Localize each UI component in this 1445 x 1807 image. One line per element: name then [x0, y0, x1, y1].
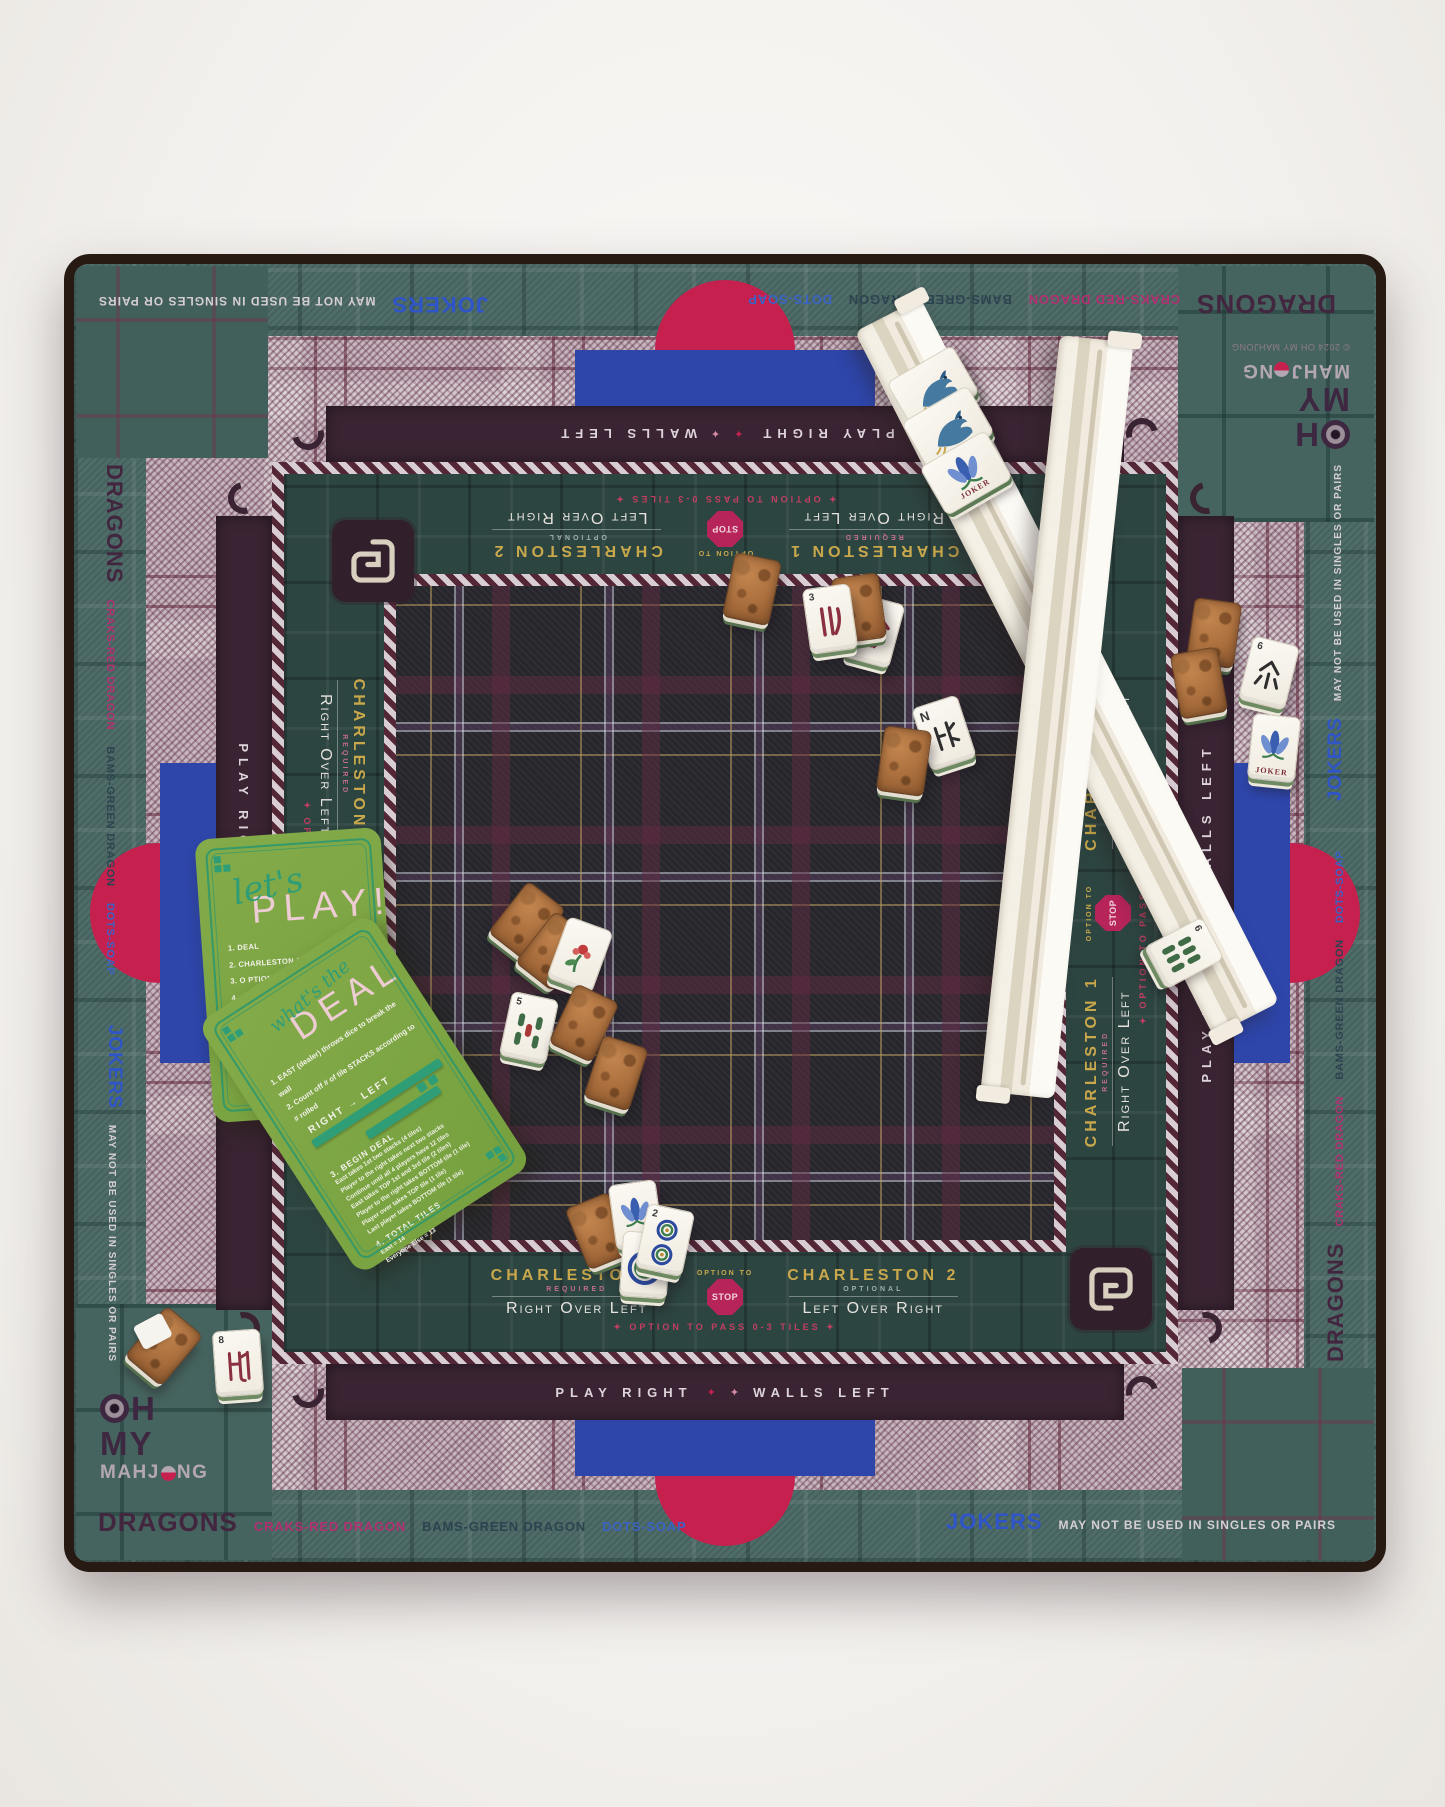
bam-sticks-icon [509, 1009, 548, 1053]
charleston1-required: REQUIRED [1102, 1031, 1109, 1092]
joker-label: JOKER [1248, 764, 1295, 778]
bam-sticks-icon [1157, 931, 1206, 977]
logo-my: MY [100, 1428, 272, 1459]
pass-tiles-label: ✦ OPTION TO PASS 0-3 TILES ✦ [613, 1322, 836, 1333]
bams-label: BAMS-GREEN DRAGON [1334, 939, 1346, 1080]
charleston1-title: CHARLESTON 1 [349, 679, 367, 851]
tile-joker[interactable]: JOKER [1247, 713, 1302, 784]
jokers-label: JOKERS [946, 1509, 1042, 1535]
bams-label: BAMS-GREEN DRAGON [104, 746, 116, 887]
jokers-note: MAY NOT BE USED IN SINGLES OR PAIRS [106, 1125, 117, 1362]
jokers-label: JOKERS [391, 291, 487, 317]
charleston2-title: CHARLESTON 2 [787, 1267, 959, 1285]
diamond-icon: ✦ [707, 1386, 716, 1399]
logo-mahjong-end: NG [177, 1462, 209, 1484]
charleston1-title: CHARLESTON 1 [1083, 975, 1101, 1147]
logo-oh: H [131, 1393, 157, 1424]
stop-badge: STOP [707, 511, 743, 547]
logo-mahjong-end: NG [1242, 359, 1274, 381]
tile-number: N [918, 708, 932, 725]
charleston1-required: REQUIRED [546, 1286, 607, 1293]
rack-pusher-arm [975, 1085, 1010, 1104]
dragons-label: DRAGONS [1323, 1243, 1349, 1362]
crak-character-glyph [1249, 655, 1287, 697]
charleston1-direction: Right Over Left [492, 1296, 661, 1318]
edge-legend-bottom: DRAGONS CRAKS-RED DRAGON BAMS-GREEN DRAG… [98, 1490, 1336, 1554]
jokers-note: MAY NOT BE USED IN SINGLES OR PAIRS [1059, 1518, 1336, 1532]
dragons-label: DRAGONS [98, 1507, 238, 1538]
red-o-icon [1274, 363, 1289, 378]
charleston1-required: REQUIRED [341, 734, 348, 795]
tile-number: 6 [1191, 923, 1203, 933]
charleston2-direction: Left Over Right [492, 508, 661, 530]
tile-number: 3 [808, 592, 815, 604]
tile-number: 5 [515, 996, 523, 1008]
tile-crak-3[interactable]: 3 [802, 583, 859, 655]
charleston1-direction: Right Over Left [1112, 977, 1134, 1146]
jokers-note: MAY NOT BE USED IN SINGLES OR PAIRS [1333, 464, 1344, 701]
dragons-label: DRAGONS [101, 464, 127, 583]
stop-badge: STOP [1095, 895, 1131, 931]
diamond-icon: ✦ [730, 1386, 739, 1399]
copyright-text: © 2024 OH MY MAHJONG [1178, 342, 1374, 352]
play-right-label: PLAY RIGHT [555, 1385, 692, 1400]
logo-my: MY [1178, 384, 1350, 415]
charleston2-optional: OPTIONAL [547, 533, 607, 540]
charleston2-direction: Left Over Right [789, 1296, 958, 1318]
walls-left-label: WALLS LEFT [555, 427, 697, 442]
option-to-label: OPTION TO [1086, 885, 1093, 941]
knot-emblem-icon [1070, 1248, 1152, 1330]
bams-label: BAMS-GREEN DRAGON [422, 1519, 586, 1534]
stop-badge: STOP [707, 1279, 743, 1315]
knot-emblem-icon [332, 520, 414, 602]
dots-label: DOTS-SOAP [104, 903, 116, 976]
card-corner-knot-icon [214, 855, 237, 878]
charleston1-direction: Right Over Left [316, 680, 338, 849]
dragons-label: DRAGONS [1196, 289, 1336, 320]
charleston2-optional: OPTIONAL [843, 1286, 903, 1293]
red-o-icon [161, 1466, 176, 1481]
card-corner-knot-icon [222, 1017, 252, 1047]
die-icon [427, 1073, 439, 1085]
tile-face-down[interactable] [876, 725, 933, 797]
diamond-icon: ✦ [711, 428, 720, 441]
charleston-instructions: CHARLESTON 1 REQUIRED Right Over Left OP… [396, 1250, 1054, 1350]
play-right-label: PLAY RIGHT [757, 427, 894, 442]
play-direction-band: PLAY RIGHT ✦ ✦ WALLS LEFT [326, 1364, 1124, 1420]
dots-label: DOTS-SOAP [748, 293, 832, 308]
tile-number: 8 [218, 1335, 224, 1346]
tile-crak-8[interactable]: 8 [212, 1328, 264, 1397]
jokers-label: JOKERS [1325, 717, 1347, 801]
mat-surface: PLAY RIGHT ✦ ✦ WALLS LEFT PLAY RIGHT ✦ ✦… [74, 264, 1376, 1562]
edge-legend-left: DRAGONS CRAKS-RED DRAGON BAMS-GREEN DRAG… [82, 464, 146, 1362]
blue-bar-motif [575, 350, 875, 406]
logo-mahjong: MAHJ [100, 1462, 160, 1484]
crak-character-glyph [222, 1347, 254, 1385]
bams-label: BAMS-GREEN DRAGON [848, 293, 1012, 308]
charleston1-direction: Right Over Left [789, 508, 958, 530]
dots-label: DOTS-SOAP [1334, 850, 1346, 923]
craks-label: CRAKS-RED DRAGON [104, 599, 116, 730]
charleston1-title: CHARLESTON 1 [787, 541, 959, 559]
bullseye-o-icon [1321, 420, 1350, 449]
pass-tiles-label: ✦ OPTION TO PASS 0-3 TILES ✦ [613, 493, 836, 504]
option-to-label: OPTION TO [697, 1270, 753, 1277]
wind-north-glyph [927, 716, 964, 755]
charleston1-required: REQUIRED [843, 533, 904, 540]
craks-label: CRAKS-RED DRAGON [254, 1519, 406, 1534]
jokers-label: JOKERS [103, 1025, 125, 1109]
edge-legend-top: DRAGONS CRAKS-RED DRAGON BAMS-GREEN DRAG… [98, 272, 1336, 336]
edge-legend-right: DRAGONS CRAKS-RED DRAGON BAMS-GREEN DRAG… [1304, 464, 1368, 1362]
logo-mahjong: MAHJ [1290, 359, 1350, 381]
charleston2-title: CHARLESTON 2 [491, 541, 663, 559]
oh-my-mahjong-logo: H MY MAHJNG [76, 1393, 272, 1484]
rack-pusher-arm [1107, 330, 1142, 349]
dots-label: DOTS-SOAP [602, 1519, 686, 1534]
mahjong-mat: PLAY RIGHT ✦ ✦ WALLS LEFT PLAY RIGHT ✦ ✦… [64, 254, 1386, 1572]
jokers-note: MAY NOT BE USED IN SINGLES OR PAIRS [98, 294, 375, 308]
craks-label: CRAKS-RED DRAGON [1334, 1096, 1346, 1227]
diamond-icon: ✦ [734, 428, 743, 441]
tile-number: 6 [1256, 641, 1264, 653]
joker-lotus-icon [1255, 728, 1294, 764]
oh-my-mahjong-logo: H MY MAHJNG [1178, 359, 1374, 450]
flower-icon [558, 935, 599, 981]
crak-character-glyph [813, 602, 848, 642]
product-photo-stage: PLAY RIGHT ✦ ✦ WALLS LEFT PLAY RIGHT ✦ ✦… [0, 0, 1445, 1807]
bullseye-dot-icon [647, 1217, 682, 1269]
bullseye-o-icon [100, 1394, 129, 1423]
logo-oh: H [1293, 418, 1319, 449]
play-direction-band: PLAY RIGHT ✦ ✦ WALLS LEFT [326, 406, 1124, 462]
craks-label: CRAKS-RED DRAGON [1028, 293, 1180, 308]
blue-bar-motif [575, 1420, 875, 1476]
walls-left-label: WALLS LEFT [753, 1385, 895, 1400]
